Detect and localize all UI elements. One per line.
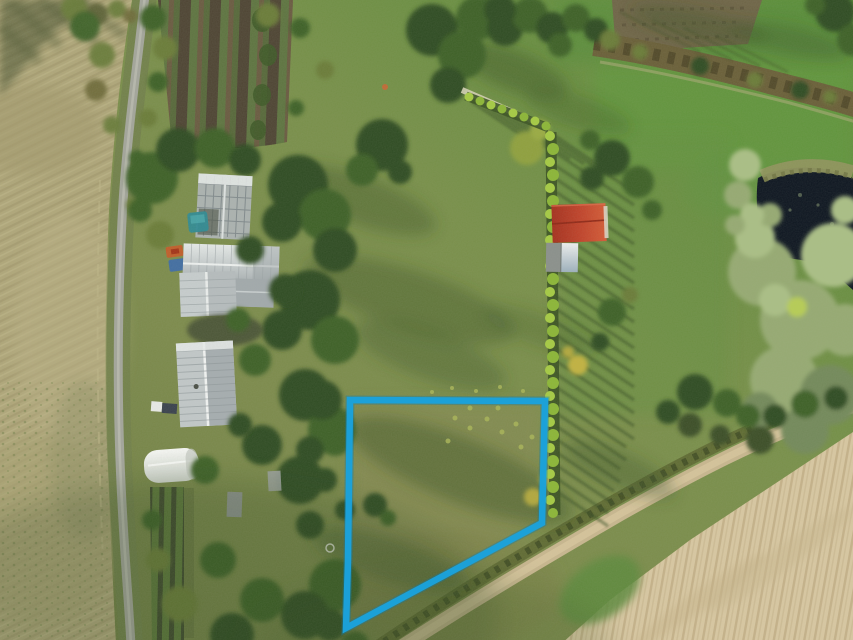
film-grain <box>0 0 853 640</box>
aerial-photo[interactable] <box>0 0 853 640</box>
aerial-photo-canvas <box>0 0 853 640</box>
